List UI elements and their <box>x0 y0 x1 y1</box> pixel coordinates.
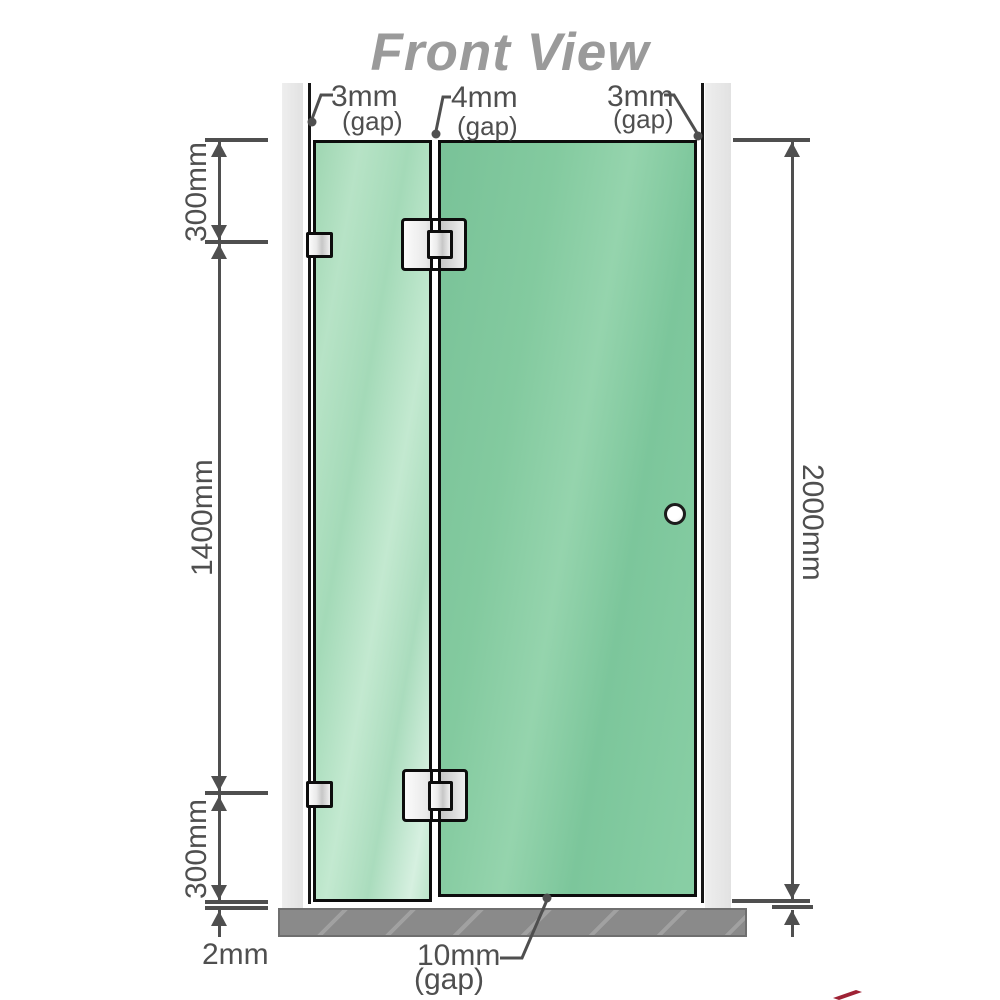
right-wall-edge-line <box>701 83 704 903</box>
dim-tick <box>772 905 813 909</box>
label-door-bottom-gap-note: (gap) <box>414 963 484 997</box>
diagram-title: Front View <box>0 22 1000 83</box>
label-gap-top-right-note: (gap) <box>613 104 674 135</box>
leader-gap-top-middle <box>436 97 451 131</box>
door-glass-panel <box>438 140 697 897</box>
front-view-diagram: Front View <box>0 0 1000 1000</box>
wall-bracket-top <box>306 232 333 258</box>
dim-tick <box>205 900 268 904</box>
label-gap-top-middle-value: 4mm <box>451 81 518 115</box>
right-wall-channel <box>705 83 731 908</box>
dim-tick <box>205 906 268 910</box>
leader-gap-top-left <box>312 95 333 119</box>
label-segment-top: 300mm <box>180 140 214 244</box>
door-knob <box>664 503 686 525</box>
leader-dot <box>432 130 441 139</box>
wall-bracket-bottom <box>306 781 333 808</box>
logo-fragment <box>833 990 862 1000</box>
floor-hob <box>278 908 747 937</box>
label-overall-height: 2000mm <box>795 141 829 903</box>
label-segment-bottom: 300mm <box>180 794 214 904</box>
hinge-bottom-tab <box>428 781 453 811</box>
hinge-top-tab <box>427 230 453 259</box>
dim-line-right-2000 <box>791 141 794 901</box>
label-segment-middle: 1400mm <box>186 243 220 793</box>
arrowhead <box>784 910 800 925</box>
label-gap-top-left-note: (gap) <box>342 106 403 137</box>
left-wall-channel <box>282 83 303 908</box>
label-gap-top-middle-note: (gap) <box>457 111 518 142</box>
label-floor-clearance: 2mm <box>202 938 269 972</box>
arrowhead <box>211 911 227 926</box>
